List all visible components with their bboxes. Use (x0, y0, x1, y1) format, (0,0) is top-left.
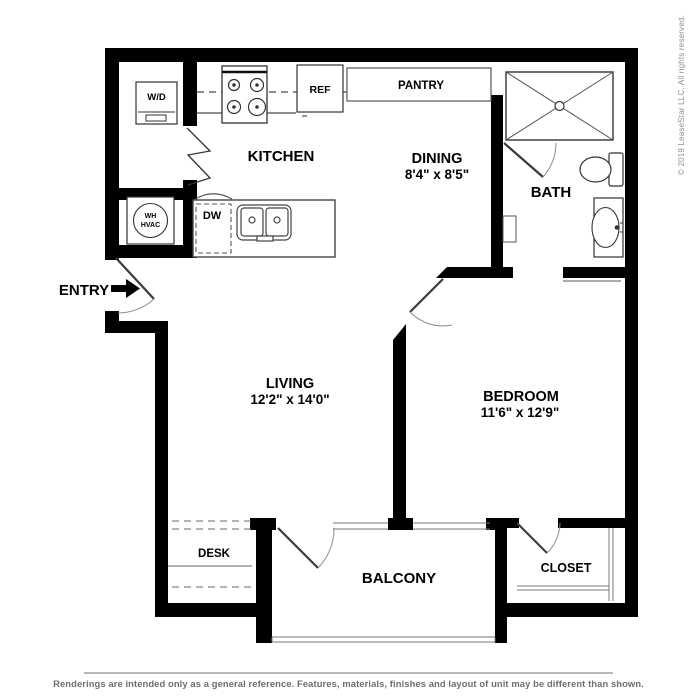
balcony-door (278, 528, 334, 568)
room-label-living: LIVING (266, 376, 314, 392)
stove-icon (222, 66, 267, 123)
bedroom-door (410, 279, 452, 326)
wall-bath-bottom (563, 267, 638, 278)
dishwasher-label: DW (203, 210, 222, 222)
kitchen-sink-icon (237, 205, 291, 241)
washer-dryer-label: W/D (147, 92, 166, 103)
room-label-kitchen: KITCHEN (248, 148, 315, 165)
room-dims-dining: 8'4" x 8'5" (405, 167, 469, 182)
bath-door (504, 143, 556, 177)
room-label-closet: CLOSET (541, 561, 592, 575)
wall-hvac-bottom (105, 245, 197, 258)
wall-closet-bottom (507, 603, 638, 617)
room-label-bedroom: BEDROOM (483, 389, 559, 405)
pantry-shelf: PANTRY (347, 68, 491, 101)
wall-hall (436, 267, 513, 278)
wall-dining-right (491, 95, 503, 268)
water-heater-label-2: HVAC (141, 222, 160, 229)
balcony-rail (272, 637, 495, 642)
room-label-bath: BATH (531, 184, 572, 201)
floor-plan: REF PANTRY W/D WH HVAC DW (0, 0, 697, 697)
wall-stub-balcony-right (486, 518, 507, 530)
wall-stub-balcony-left (250, 518, 276, 530)
refrigerator-icon: REF (297, 65, 343, 116)
entry-arrow-icon (111, 279, 140, 298)
water-heater-hvac-icon: WH HVAC (127, 197, 174, 244)
wd-closet-bifold-door (187, 128, 210, 185)
room-label-entry: ENTRY (59, 282, 109, 299)
copyright-watermark: © 2019 LeaseStar LLC. All rights reserve… (677, 0, 689, 190)
pantry-label: PANTRY (398, 80, 444, 92)
floorplan-page: REF PANTRY W/D WH HVAC DW (0, 0, 697, 697)
footer-divider (84, 672, 613, 674)
refrigerator-label: REF (310, 84, 332, 96)
disclaimer-text: Renderings are intended only as a genera… (0, 678, 697, 689)
water-heater-label-1: WH (145, 213, 157, 220)
wall-closet-top (558, 518, 625, 528)
window-living (333, 523, 388, 529)
washer-dryer-icon: W/D (136, 82, 177, 124)
wall-balcony-right (495, 518, 507, 643)
wall-left-upper (105, 48, 119, 260)
bath-niche (503, 216, 516, 242)
shower-icon (506, 72, 613, 140)
footer: Renderings are intended only as a genera… (0, 664, 697, 689)
wall-stub-center (388, 518, 413, 530)
kitchen-island: DW (193, 194, 335, 257)
window-bedroom (413, 523, 490, 529)
room-dims-living: 12'2" x 14'0" (250, 392, 329, 407)
room-label-balcony: BALCONY (362, 570, 436, 587)
room-label-desk: DESK (198, 548, 231, 560)
wall-right (625, 48, 638, 617)
room-label-dining: DINING (412, 151, 463, 167)
wall-desk-bottom (155, 603, 272, 617)
wall-balcony-left (256, 518, 272, 643)
wall-living-bedroom (393, 324, 406, 518)
room-dims-bedroom: 11'6" x 12'9" (481, 405, 560, 420)
closet-door (517, 523, 560, 553)
toilet-icon (580, 153, 623, 186)
wall-top (105, 48, 638, 62)
sink-vanity-icon (592, 198, 623, 257)
wall-wd-closet-upper (183, 62, 197, 126)
wall-left-lower (155, 321, 168, 617)
